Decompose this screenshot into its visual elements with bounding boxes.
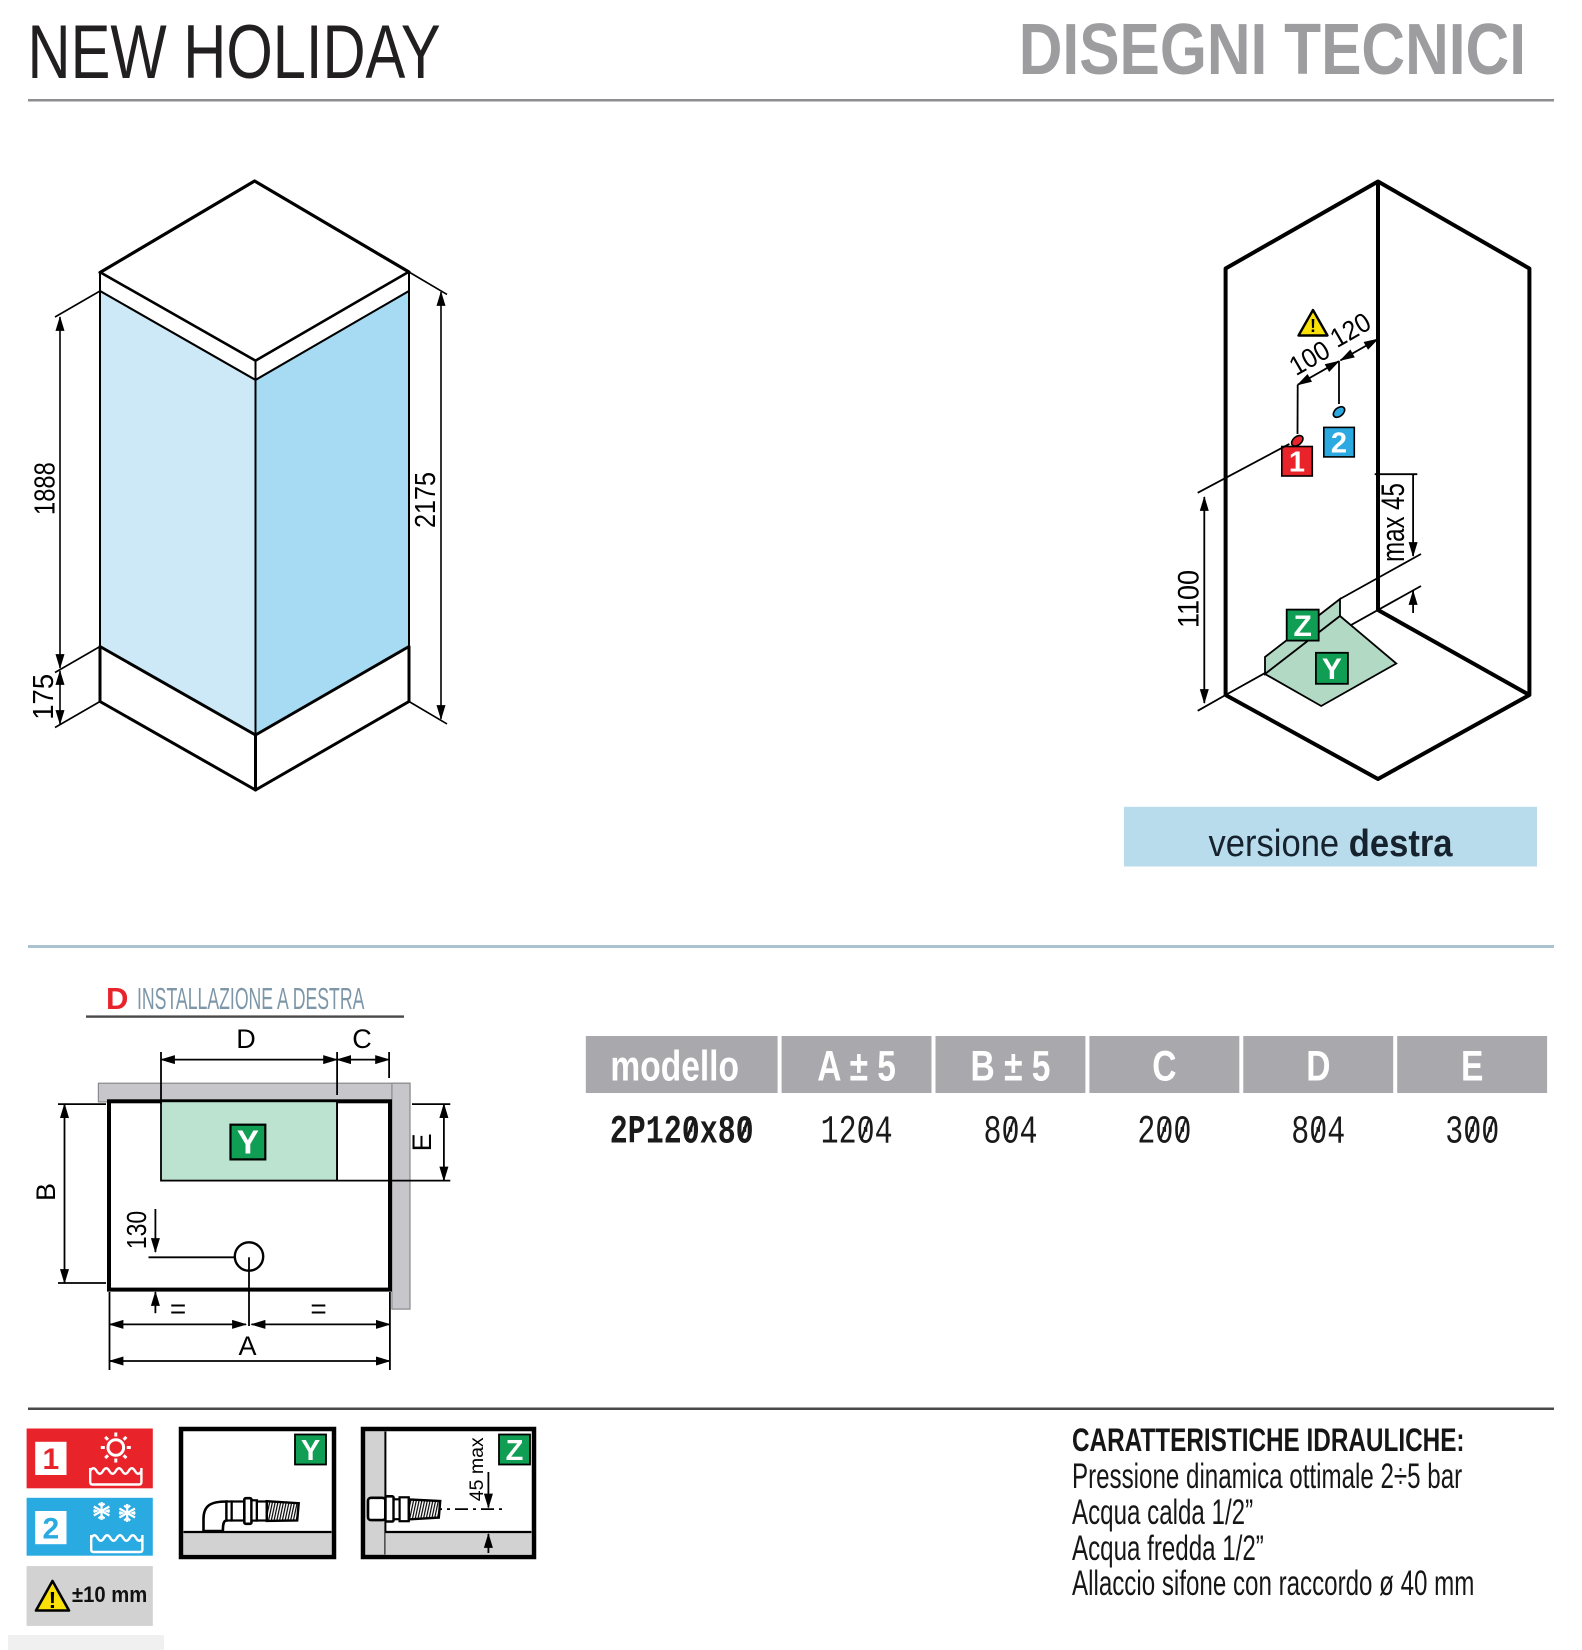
svg-text:Y: Y [1322, 653, 1342, 686]
svg-text:!: ! [49, 1587, 57, 1613]
svg-text:2175: 2175 [408, 472, 441, 528]
svg-text:1: 1 [42, 1443, 59, 1476]
svg-text:=: = [170, 1293, 186, 1324]
svg-text:Allaccio sifone con raccordo ø: Allaccio sifone con raccordo ø 40 mm [1072, 1565, 1474, 1603]
svg-text:D: D [1306, 1042, 1330, 1090]
svg-text:804: 804 [1291, 1110, 1345, 1155]
svg-text:E: E [407, 1133, 437, 1151]
svg-text:DISEGNI TECNICI: DISEGNI TECNICI [1019, 10, 1526, 90]
svg-text:max 45: max 45 [1375, 483, 1411, 562]
svg-text:B: B [31, 1183, 61, 1201]
svg-text:Acqua calda 1/2”: Acqua calda 1/2” [1072, 1494, 1253, 1532]
svg-text:1: 1 [1289, 447, 1305, 479]
svg-text:Y: Y [237, 1124, 259, 1161]
svg-text:E: E [1461, 1042, 1483, 1090]
svg-text:CARATTERISTICHE IDRAULICHE:: CARATTERISTICHE IDRAULICHE: [1072, 1423, 1465, 1459]
svg-text:200: 200 [1137, 1110, 1191, 1155]
svg-text:1100: 1100 [1172, 570, 1206, 628]
svg-text:175: 175 [26, 674, 59, 720]
svg-text:INSTALLAZIONE A DESTRA: INSTALLAZIONE A DESTRA [137, 982, 364, 1016]
svg-text:C: C [1152, 1042, 1176, 1090]
svg-text:versione destra: versione destra [1208, 821, 1453, 864]
svg-text:!: ! [1310, 316, 1316, 336]
svg-text:2P120x80: 2P120x80 [610, 1110, 754, 1155]
svg-text:=: = [310, 1293, 326, 1324]
svg-text:2: 2 [42, 1513, 59, 1546]
svg-text:Y: Y [301, 1435, 320, 1467]
svg-text:D: D [236, 1024, 256, 1054]
svg-text:Z: Z [1294, 610, 1312, 643]
svg-text:Z: Z [506, 1435, 524, 1467]
svg-text:300: 300 [1445, 1110, 1499, 1155]
svg-text:1888: 1888 [28, 462, 61, 515]
svg-text:A ± 5: A ± 5 [817, 1042, 896, 1090]
svg-text:Pressione dinamica ottimale 2÷: Pressione dinamica ottimale 2÷5 bar [1072, 1458, 1462, 1496]
svg-text:modello: modello [610, 1042, 739, 1090]
svg-text:B ± 5: B ± 5 [971, 1042, 1051, 1090]
svg-text:NEW HOLIDAY: NEW HOLIDAY [28, 10, 441, 95]
svg-text:C: C [352, 1024, 372, 1054]
svg-text:130: 130 [122, 1211, 153, 1249]
svg-text:2: 2 [1331, 427, 1347, 459]
svg-text:1204: 1204 [821, 1110, 893, 1155]
svg-text:804: 804 [983, 1110, 1037, 1155]
svg-text:D: D [106, 981, 128, 1016]
svg-text:A: A [238, 1331, 256, 1361]
svg-text:±10 mm: ±10 mm [72, 1582, 147, 1607]
svg-text:Acqua fredda 1/2”: Acqua fredda 1/2” [1072, 1530, 1264, 1568]
svg-text:45 max: 45 max [466, 1437, 488, 1501]
